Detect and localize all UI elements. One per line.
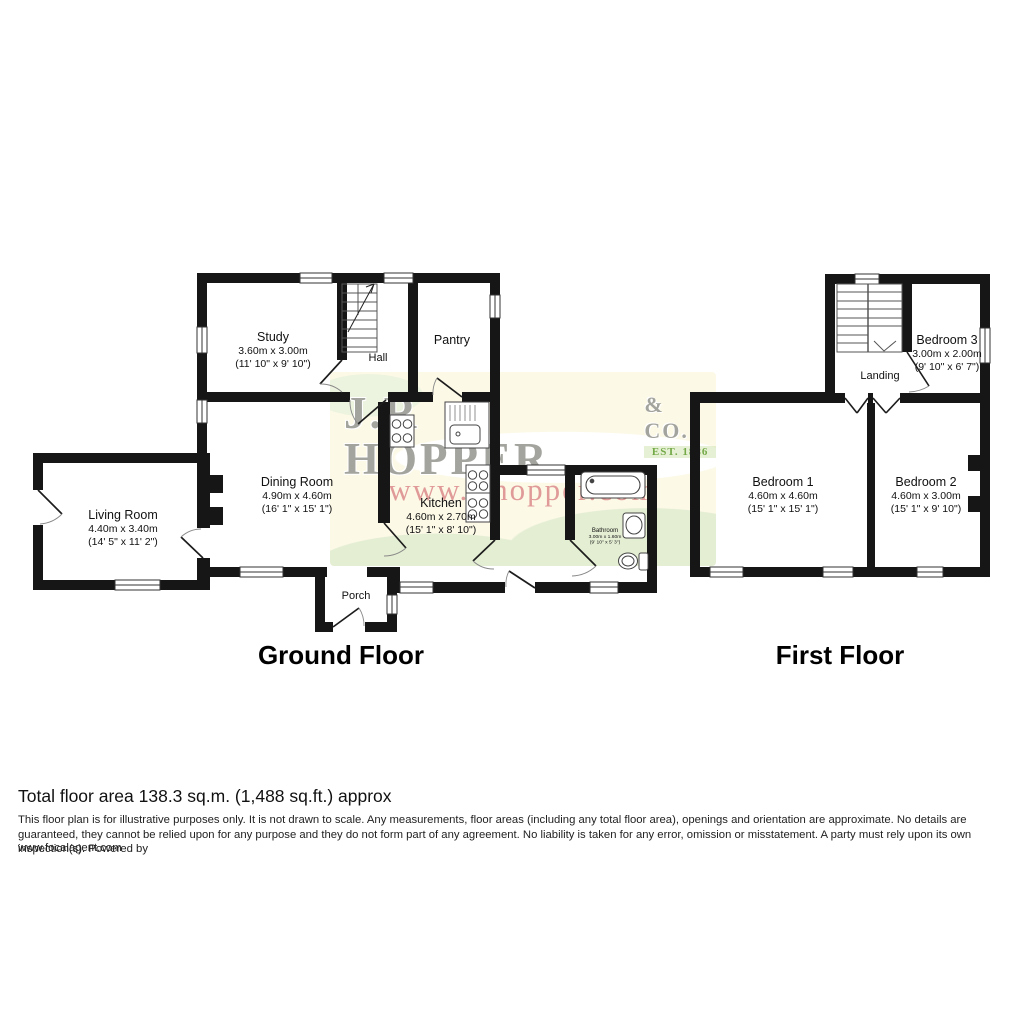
room-label-porch: Porch xyxy=(326,589,386,604)
ground-floor-windows xyxy=(115,273,618,614)
total-floor-area-text: Total floor area 138.3 sq.m. (1,488 sq.f… xyxy=(18,786,392,807)
room-label-living-room: Living Room 4.40m x 3.40m (14' 5" x 11' … xyxy=(43,508,203,548)
room-label-study: Study 3.60m x 3.00m (11' 10" x 9' 10") xyxy=(203,330,343,370)
room-name: Bedroom 2 xyxy=(846,475,1006,490)
staircase-icon xyxy=(342,284,377,352)
ground-floor-walls xyxy=(33,273,657,632)
bathtub-icon xyxy=(581,472,645,498)
room-label-pantry: Pantry xyxy=(412,333,492,348)
room-dims-imperial: (15' 1" x 8' 10") xyxy=(361,524,521,537)
disclaimer-text: This floor plan is for illustrative purp… xyxy=(18,813,1003,857)
room-dims-metric: 4.90m x 4.60m xyxy=(217,490,377,503)
room-label-hall: Hall xyxy=(348,351,408,366)
room-dims-imperial: (16' 1" x 15' 1") xyxy=(217,503,377,516)
room-name: Bedroom 3 xyxy=(877,333,1017,348)
room-name: Kitchen xyxy=(361,496,521,511)
first-floor-title: First Floor xyxy=(715,640,965,671)
room-name: Study xyxy=(203,330,343,345)
agent-url-text: www.focalagent.com xyxy=(18,842,122,854)
room-label-bathroom: Bathroom 3.00m x 1.60m (9' 10" x 5' 3") xyxy=(561,527,649,545)
room-label-kitchen: Kitchen 4.60m x 2.70m (15' 1" x 8' 10") xyxy=(361,496,521,536)
room-dims-metric: 3.00m x 2.00m xyxy=(877,348,1017,361)
chimney-breast-icon xyxy=(968,455,980,471)
room-dims-imperial: (14' 5" x 11' 2") xyxy=(43,536,203,549)
room-name: Landing xyxy=(840,369,920,384)
room-label-bedroom-3: Bedroom 3 3.00m x 2.00m (9' 10" x 6' 7") xyxy=(877,333,1017,373)
room-label-dining-room: Dining Room 4.90m x 4.60m (16' 1" x 15' … xyxy=(217,475,377,515)
ground-floor-plan xyxy=(33,273,657,632)
first-floor-windows xyxy=(710,274,990,577)
room-dims-metric: 4.60m x 4.60m xyxy=(703,490,863,503)
room-name: Hall xyxy=(348,351,408,366)
room-label-bedroom-1: Bedroom 1 4.60m x 4.60m (15' 1" x 15' 1"… xyxy=(703,475,863,515)
floor-plan-page: { "watermark": { "brand": "J.R HOPPER", … xyxy=(0,0,1024,1024)
room-name: Porch xyxy=(326,589,386,604)
first-floor-plan xyxy=(690,274,990,577)
room-name: Pantry xyxy=(412,333,492,348)
ground-floor-title: Ground Floor xyxy=(216,640,466,671)
room-name: Dining Room xyxy=(217,475,377,490)
first-floor-door-arcs xyxy=(909,386,929,392)
room-dims-imperial: (9' 10" x 5' 3") xyxy=(561,539,649,545)
toilet-icon xyxy=(619,553,649,570)
room-name: Bedroom 1 xyxy=(703,475,863,490)
hob-icon xyxy=(390,415,414,447)
room-dims-metric: 4.60m x 2.70m xyxy=(361,511,521,524)
room-label-landing: Landing xyxy=(840,369,920,384)
room-dims-imperial: (15' 1" x 15' 1") xyxy=(703,503,863,516)
sink-icon xyxy=(445,402,489,448)
first-floor-walls xyxy=(690,274,990,577)
room-dims-metric: 4.40m x 3.40m xyxy=(43,523,203,536)
room-dims-imperial: (11' 10" x 9' 10") xyxy=(203,358,343,371)
room-dims-metric: 3.60m x 3.00m xyxy=(203,345,343,358)
room-name: Living Room xyxy=(43,508,203,523)
room-dims-metric: 4.60m x 3.00m xyxy=(846,490,1006,503)
room-dims-imperial: (15' 1" x 9' 10") xyxy=(846,503,1006,516)
room-label-bedroom-2: Bedroom 2 4.60m x 3.00m (15' 1" x 9' 10"… xyxy=(846,475,1006,515)
